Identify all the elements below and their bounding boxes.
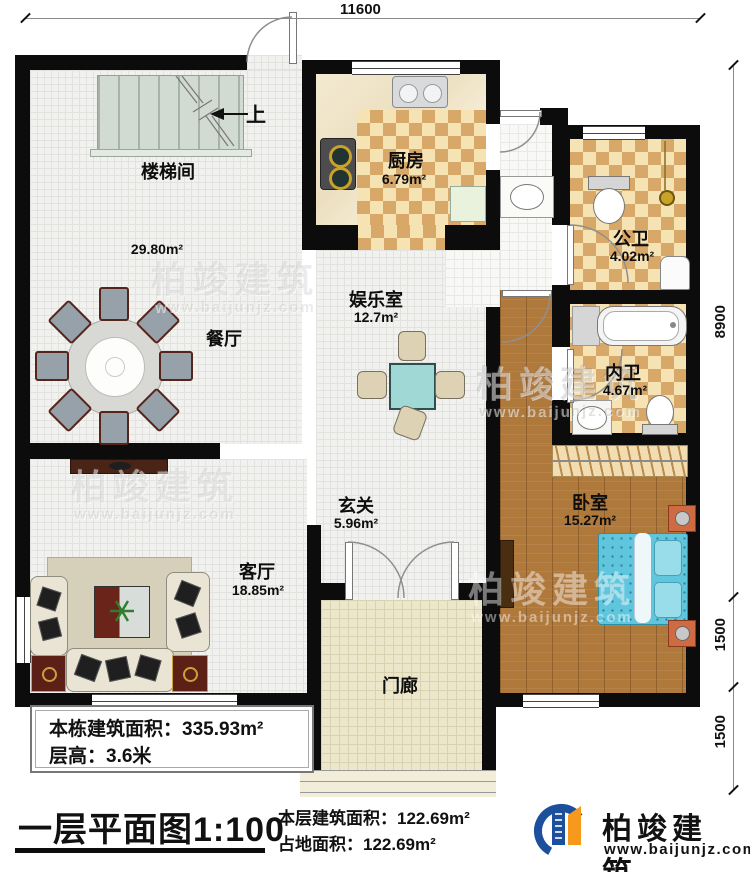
sofa-bottom bbox=[66, 648, 174, 692]
label-up: 上 bbox=[246, 99, 266, 128]
logo-website: www.baijunjz.com bbox=[604, 841, 750, 858]
wall-entry-jamb-a bbox=[321, 583, 348, 600]
game-chair bbox=[435, 371, 465, 399]
wall-kitchen-right bbox=[486, 60, 500, 108]
porch-step-line bbox=[300, 781, 496, 782]
sofa-right bbox=[166, 572, 210, 652]
floor-hallway-wood bbox=[500, 290, 552, 445]
corridor-basin bbox=[510, 184, 544, 210]
nightstand-1 bbox=[668, 505, 696, 532]
wall-dining-living bbox=[15, 443, 220, 459]
dimension-right-1500a: 1500 bbox=[712, 618, 729, 651]
label-living: 客厅 bbox=[239, 558, 275, 584]
wall-kitchen-bottom-b bbox=[445, 225, 500, 250]
door-leaf-entry-right bbox=[451, 542, 459, 600]
plan-title-underline bbox=[15, 848, 265, 853]
area-hall: 29.80m² bbox=[131, 241, 183, 257]
wall-bath-left-c bbox=[552, 304, 570, 347]
info-floor-height: 层高：3.6米 bbox=[49, 743, 312, 770]
floor-kitchen-threshold bbox=[358, 225, 445, 250]
kitchen-stove bbox=[320, 138, 356, 190]
corner-table-right bbox=[172, 655, 208, 692]
door-leaf-inner-bath bbox=[567, 349, 574, 403]
floor-passage bbox=[445, 250, 500, 307]
wall-kitchen-left bbox=[302, 60, 316, 250]
stats-footprint: 占地面积：122.69m² bbox=[278, 832, 470, 858]
wall-bath-mid bbox=[552, 290, 700, 304]
area-inner-bath: 4.67m² bbox=[603, 382, 647, 398]
area-foyer: 5.96m² bbox=[334, 515, 378, 531]
company-logo: 柏竣建筑 www.baijunjz.com bbox=[528, 798, 740, 862]
window-public-bath bbox=[583, 126, 645, 140]
info-building-area: 本栋建筑面积：335.93m² bbox=[49, 716, 312, 743]
wall-corridor-left bbox=[486, 170, 500, 225]
tub-deck bbox=[572, 306, 600, 346]
stairs-landing bbox=[90, 149, 252, 157]
window-bedroom-bottom bbox=[523, 694, 599, 708]
info-box: 本栋建筑面积：335.93m² 层高：3.6米 bbox=[30, 705, 314, 773]
window-living-left bbox=[16, 597, 31, 663]
bedroom-door-leaf bbox=[500, 540, 514, 608]
dimension-right-8900: 8900 bbox=[712, 305, 729, 338]
toilet-tank-2 bbox=[642, 424, 678, 435]
shower-head bbox=[659, 190, 675, 206]
game-chair bbox=[398, 331, 426, 361]
window-kitchen bbox=[352, 61, 460, 75]
pillow-1 bbox=[654, 540, 682, 576]
dining-chair bbox=[35, 351, 69, 381]
label-dining: 餐厅 bbox=[206, 325, 242, 351]
porch-step-line bbox=[300, 792, 496, 793]
wall-bath-left-d bbox=[552, 400, 570, 433]
area-public-bath: 4.02m² bbox=[610, 248, 654, 264]
label-stairwell: 楼梯间 bbox=[141, 158, 195, 184]
dining-chair bbox=[159, 351, 193, 381]
mahjong-table bbox=[389, 363, 436, 410]
dimension-line-right bbox=[733, 65, 734, 790]
washing-machine bbox=[660, 256, 690, 290]
kitchen-appliance bbox=[450, 186, 486, 222]
plan-title: 一层平面图1:100 bbox=[18, 802, 285, 851]
up-arrow-head bbox=[210, 108, 224, 120]
game-chair bbox=[357, 371, 387, 399]
up-arrow-line bbox=[222, 113, 248, 115]
area-entertainment: 12.7m² bbox=[354, 309, 398, 325]
coffee-table bbox=[94, 586, 150, 638]
door-leaf-public-bath bbox=[567, 225, 574, 285]
wall-top-left bbox=[15, 55, 247, 70]
wall-porch-right bbox=[482, 600, 496, 770]
logo-mark-icon bbox=[528, 798, 598, 860]
console-table bbox=[70, 459, 168, 474]
toilet-bowl-1 bbox=[593, 188, 625, 224]
dimension-line-top bbox=[25, 18, 701, 19]
area-living: 18.85m² bbox=[232, 582, 284, 598]
pillow-2 bbox=[654, 582, 682, 618]
door-leaf-kitchen bbox=[500, 110, 542, 117]
wall-step-b bbox=[540, 108, 568, 125]
sofa-left bbox=[30, 576, 68, 656]
area-bedroom: 15.27m² bbox=[564, 512, 616, 528]
dining-chair bbox=[99, 411, 129, 445]
wall-bath-left-a bbox=[552, 125, 570, 225]
wall-step-a bbox=[486, 108, 500, 124]
dimension-top-value: 11600 bbox=[340, 1, 381, 18]
corner-table-left bbox=[31, 655, 66, 692]
label-kitchen: 厨房 bbox=[388, 147, 424, 173]
bathtub bbox=[597, 306, 687, 346]
door-leaf-entry-left bbox=[345, 542, 353, 600]
dimension-right-1500b: 1500 bbox=[712, 715, 729, 748]
kitchen-sink bbox=[392, 76, 448, 108]
door-leaf-hallway bbox=[502, 290, 552, 297]
area-kitchen: 6.79m² bbox=[382, 171, 426, 187]
wall-kitchen-bottom-a bbox=[302, 225, 358, 250]
stats-floor-area: 本层建筑面积：122.69m² bbox=[278, 806, 470, 832]
door-leaf-top bbox=[289, 12, 297, 64]
floor-stats: 本层建筑面积：122.69m² 占地面积：122.69m² bbox=[278, 806, 470, 858]
floor-plan: 柏竣建筑 www.baijunjz.com 柏竣建筑 www.baijunjz.… bbox=[0, 0, 750, 872]
logo-name: 柏竣建筑 bbox=[602, 804, 740, 872]
bed-sheet bbox=[634, 533, 651, 623]
dining-chair bbox=[99, 287, 129, 321]
inner-basin bbox=[577, 406, 607, 430]
nightstand-2 bbox=[668, 620, 696, 647]
wardrobe bbox=[552, 445, 688, 477]
label-porch: 门廊 bbox=[382, 672, 418, 698]
